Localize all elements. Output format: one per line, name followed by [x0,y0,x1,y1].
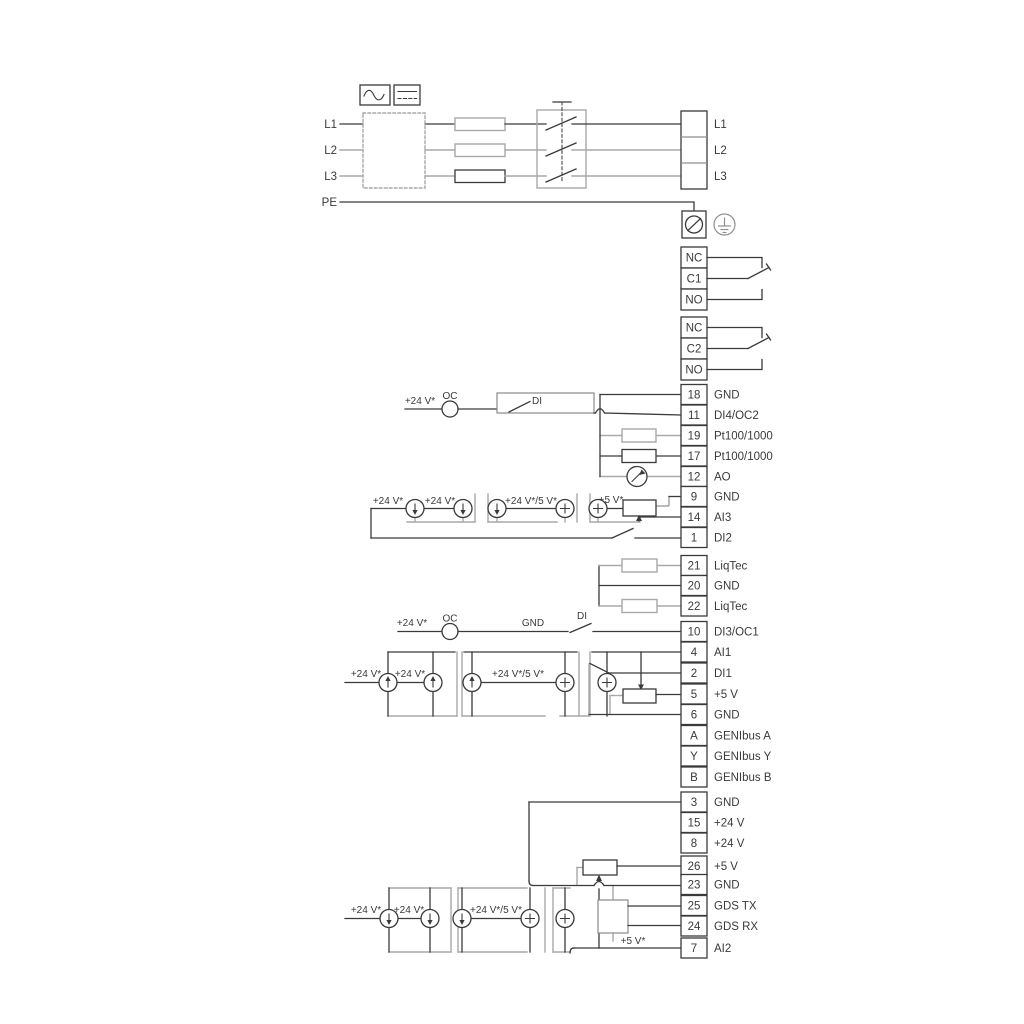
mains-wires-left [340,124,455,176]
terminal-number: 3 [691,797,697,809]
current-source-down-icon [453,910,471,928]
relay-2: NC C2 NO [681,317,771,380]
power-in-pe-label: PE [322,197,338,209]
terminal-label: Pt100/1000 [714,451,773,463]
fuse-l1 [455,118,505,131]
liqtec-sensor-2 [622,600,657,613]
terminal-number: 19 [688,431,701,443]
terminal-number: 2 [691,668,697,680]
terminal-number: B [690,772,698,784]
terminal-label: GENIbus B [714,772,772,784]
terminal-number: 25 [688,901,701,913]
gnd-label: GND [522,618,544,629]
terminal-label: AI2 [714,943,731,955]
terminal-label: Pt100/1000 [714,431,773,443]
ac-symbol-icon [360,85,390,105]
terminal-19: 19Pt100/1000 [681,426,773,446]
terminal-label: LiqTec [714,561,747,573]
terminal-9: 9GND [681,487,740,507]
fuse-l3 [455,170,505,183]
terminal-label: GND [714,880,740,892]
terminal-number: 17 [688,451,701,463]
mains-out-l3-label: L3 [714,171,727,183]
terminal-number: 9 [691,492,697,504]
terminal-number: A [690,731,698,743]
relay1-contact-wires [707,258,771,300]
voltage-source-icon [556,674,574,692]
relay-1: NC C1 NO [681,247,771,310]
terminal-label: GENIbus A [714,731,771,743]
potentiometer-ai2 [583,860,617,875]
terminal-number: 4 [691,647,698,659]
pt100-sensor-1 [622,429,656,442]
gds-sensor-box [598,900,628,933]
io-group-middle-wires: +24 V* OC GND DI +24 V* +24 V* +24 V*/5 … [345,611,681,716]
terminal-1: 1DI2 [681,528,732,548]
relay1-no-label: NO [685,295,702,307]
wiring-diagram: L1 L2 L3 PE [0,0,1024,1024]
terminal-number: 8 [691,838,697,850]
power-in-l3-label: L3 [324,171,337,183]
terminal-label: GENIbus Y [714,751,772,763]
terminal-24: 24GDS RX [681,916,758,936]
terminal-20: 20GND [681,576,740,596]
io-group-top-wires: +24 V* OC DI +24 V* +24 V* +24 V*/5 V* +… [371,391,681,538]
voltage-source-icon [556,500,574,518]
v24-5v-label: +24 V*/5 V* [505,496,557,507]
earth-ground-icon [714,214,735,235]
relay1-blade [748,268,769,279]
terminal-number: 15 [688,818,701,830]
di-label: DI [577,611,587,622]
terminal-26: 26+5 V [681,856,738,876]
terminal-2: 2DI1 [681,663,732,683]
voltage-source-icon [589,500,607,518]
current-source-down-icon [380,910,398,928]
terminal-label: +24 V [714,838,745,850]
terminal-14: 14AI3 [681,507,731,527]
terminal-number: Y [690,751,698,763]
relay1-c1-label: C1 [687,274,702,286]
fuses [455,118,546,183]
converter-dashed-box [363,113,425,188]
mains-input-section: L1 L2 L3 PE [322,85,735,238]
oc-label: OC [443,614,458,625]
relay2-blade [748,338,769,349]
v24-label: +24 V* [373,496,403,507]
terminal-number: 21 [688,561,701,573]
terminal-label: GDS TX [714,901,757,913]
fuse-l2 [455,144,505,157]
terminal-number: 12 [688,472,701,484]
di2-switch-blade [612,529,633,539]
oc-output-icon [442,401,458,417]
relay1-nc-label: NC [686,253,703,265]
terminal-6: 6GND [681,705,740,725]
relay2-no-label: NO [685,365,702,377]
terminal-label: DI4/OC2 [714,410,759,422]
terminal-label: GDS RX [714,921,758,933]
v24-label: +24 V* [397,618,427,629]
terminal-label: DI1 [714,668,732,680]
terminal-label: +5 V [714,861,738,873]
voltage-source-icon [521,910,539,928]
v24-label: +24 V* [425,496,455,507]
terminal-label: +24 V [714,818,745,830]
v24-5v-label: +24 V*/5 V* [492,669,544,680]
v24-label: +24 V* [395,669,425,680]
terminal-number: 10 [688,627,701,639]
di1-switch-blade [590,664,609,674]
main-switch [537,102,681,188]
terminal-11: 11DI4/OC2 [681,405,759,425]
terminal-label: AO [714,472,731,484]
potentiometer-ai1 [623,689,656,703]
mains-out-l1-label: L1 [714,119,727,131]
terminal-18: 18GND [681,385,740,405]
v24-label: +24 V* [351,905,381,916]
terminal-22: 22LiqTec [681,596,747,616]
terminal-label: GND [714,390,740,402]
terminal-21: 21LiqTec [681,556,747,576]
terminal-label: GND [714,797,740,809]
current-source-up-icon [424,674,442,692]
terminal-number: 14 [688,512,701,524]
v24-label: +24 V* [394,905,424,916]
voltage-source-icon [598,674,616,692]
terminal-15: 15+24 V [681,813,745,833]
wire-hop [594,882,604,886]
liqtec-sensor-1 [622,559,657,572]
terminal-23: 23GND [681,875,740,895]
liqtec-sensor-wires [599,559,681,613]
terminal-number: 7 [691,943,697,955]
terminal-25: 25GDS TX [681,896,757,916]
current-source-down-icon [406,500,424,518]
v24-label: +24 V* [405,396,435,407]
v24-5v-label: +24 V*/5 V* [470,905,522,916]
pe-ground [340,202,735,238]
mains-terminal-block: L1 L2 L3 [681,111,727,189]
current-source-down-icon [421,910,439,928]
terminal-5: 5+5 V [681,684,738,704]
voltage-source-icon [556,910,574,928]
terminal-label: GND [714,581,740,593]
terminal-3: 3GND [681,792,740,812]
terminal-number: 6 [691,710,697,722]
terminal-number: 23 [688,880,701,892]
power-in-l1-label: L1 [324,119,337,131]
v5-label: +5 V* [621,936,646,947]
analog-output-meter-icon [627,467,647,487]
di-label: DI [532,396,542,407]
terminal-label: AI1 [714,647,731,659]
relay2-c2-label: C2 [687,344,702,356]
terminal-label: GND [714,710,740,722]
oc-output-icon [442,624,458,640]
current-source-up-icon [463,674,481,692]
di3-switch-blade [570,624,591,633]
current-source-up-icon [379,674,397,692]
mains-out-l2-label: L2 [714,145,727,157]
relay2-nc-label: NC [686,323,703,335]
terminal-number: 5 [691,689,697,701]
dc-symbol-icon [394,85,420,105]
terminal-12: 12AO [681,467,731,487]
terminal-number: 22 [688,601,701,613]
terminal-label: AI3 [714,512,731,524]
current-source-down-icon [454,500,472,518]
terminal-b: BGENIbus B [681,767,772,787]
terminal-label: LiqTec [714,601,747,613]
pt100-sensor-2 [622,450,656,463]
terminal-number: 18 [688,390,701,402]
terminal-a: AGENIbus A [681,726,771,746]
terminal-number: 11 [688,410,700,422]
terminal-8: 8+24 V [681,833,745,853]
v24-label: +24 V* [351,669,381,680]
terminal-10: 10DI3/OC1 [681,622,759,642]
terminal-4: 4AI1 [681,642,731,662]
io-group-bottom-wires: +24 V* +24 V* +24 V*/5 V* [345,802,681,953]
terminal-number: 1 [691,533,697,545]
power-in-l2-label: L2 [324,145,337,157]
terminal-17: 17Pt100/1000 [681,446,773,466]
terminal-label: +5 V [714,689,738,701]
terminal-number: 26 [688,861,701,873]
terminal-label: DI2 [714,533,732,545]
terminal-label: DI3/OC1 [714,627,759,639]
terminal-strip: 18GND 11DI4/OC2 19Pt100/1000 17Pt100/100… [681,385,773,959]
terminal-number: 24 [688,921,701,933]
terminal-y: YGENIbus Y [681,746,772,766]
potentiometer-ai3 [623,500,656,516]
relay2-contact-wires [707,328,771,370]
terminal-label: GND [714,492,740,504]
terminal-number: 20 [688,581,701,593]
terminal-7: 7AI2 [681,938,731,958]
current-source-down-icon [488,500,506,518]
